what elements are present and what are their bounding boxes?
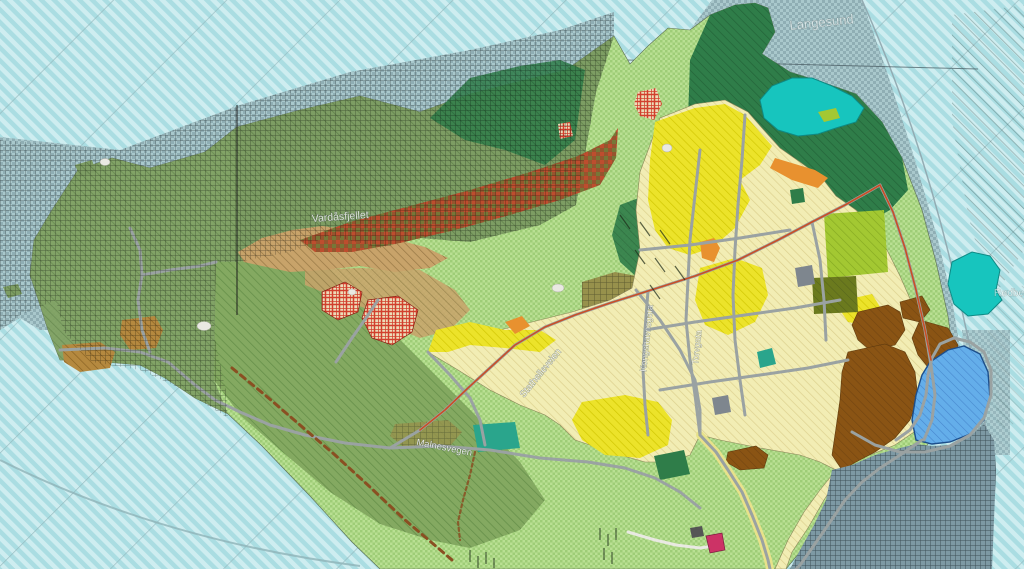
olive-parcel — [812, 276, 858, 314]
lime-parcel — [824, 210, 888, 278]
teal-cove — [948, 252, 1002, 316]
gray-parcel-2 — [712, 395, 731, 415]
building-gray — [690, 526, 704, 538]
edge-label: Rødberget — [994, 288, 1024, 299]
map-canvas[interactable]: Langesund Vardåsfjellet Malnesvegen Stat… — [0, 0, 1024, 569]
zoning-map: Langesund Vardåsfjellet Malnesvegen Stat… — [0, 0, 1024, 569]
gray-parcel-1 — [795, 265, 815, 287]
green-parcel-2 — [790, 188, 805, 204]
